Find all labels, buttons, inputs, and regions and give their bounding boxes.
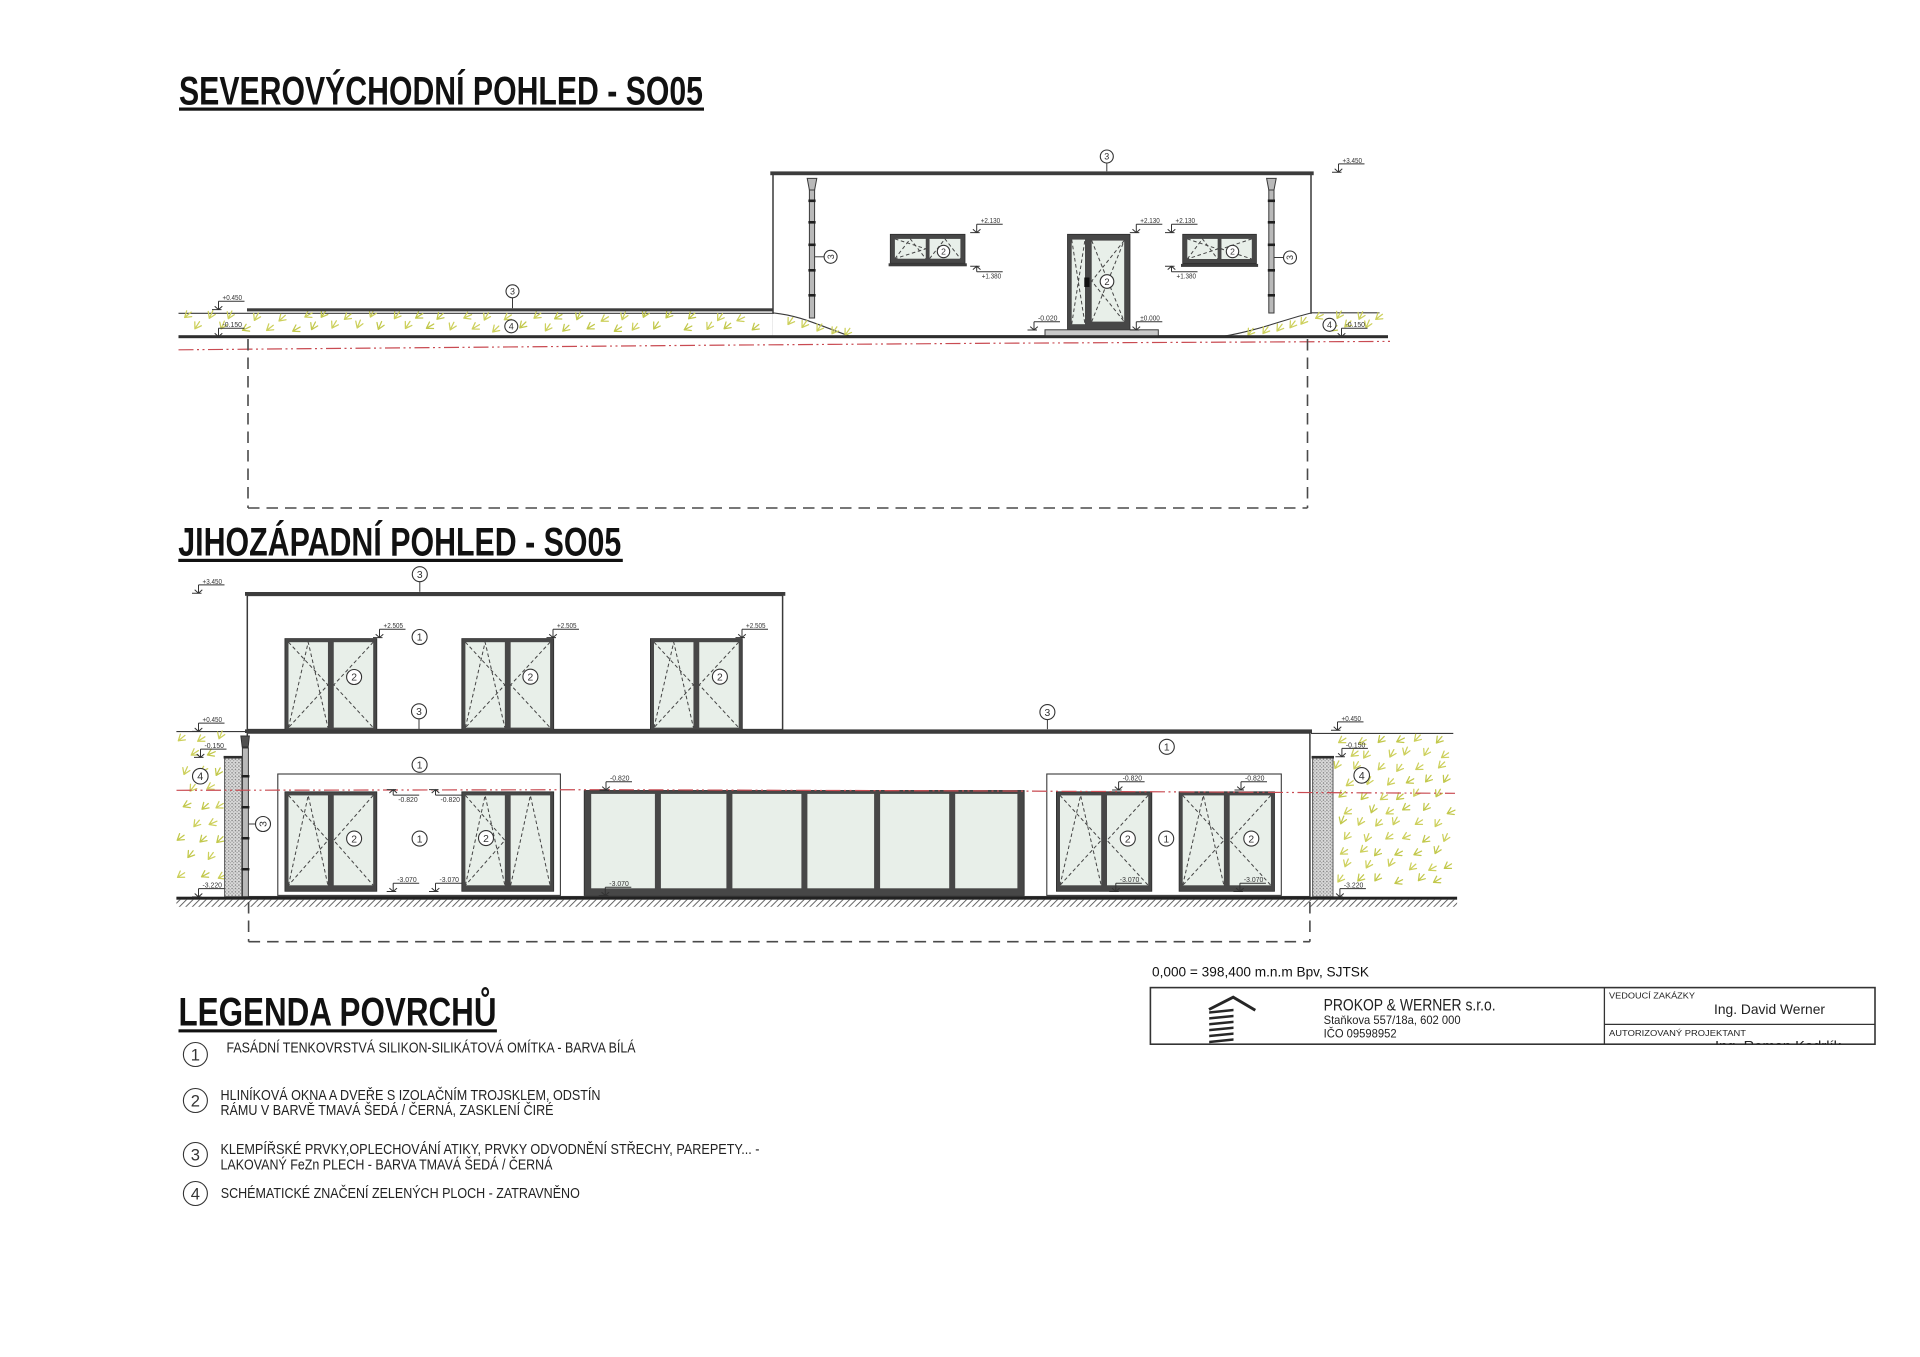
svg-text:4: 4	[197, 771, 203, 783]
svg-text:HLINÍKOVÁ OKNA A DVEŘE S IZOLA: HLINÍKOVÁ OKNA A DVEŘE S IZOLAČNÍM TROJS…	[221, 1087, 601, 1104]
svg-text:+2.505: +2.505	[384, 621, 404, 630]
svg-text:-0.150: -0.150	[1346, 320, 1366, 329]
svg-text:±0.000: ±0.000	[1140, 314, 1160, 323]
svg-text:Ing. David Werner: Ing. David Werner	[1714, 1002, 1825, 1017]
svg-text:-3.070: -3.070	[397, 875, 417, 884]
svg-text:-3.070: -3.070	[1120, 875, 1140, 884]
svg-text:+2.130: +2.130	[981, 216, 1001, 225]
svg-text:SCHÉMATICKÉ ZNAČENÍ ZELENÝCH P: SCHÉMATICKÉ ZNAČENÍ ZELENÝCH PLOCH - ZAT…	[221, 1185, 580, 1202]
svg-text:2: 2	[191, 1091, 200, 1110]
svg-text:1: 1	[417, 834, 423, 845]
svg-text:1: 1	[1164, 743, 1170, 754]
svg-text:1: 1	[191, 1045, 200, 1064]
svg-text:3: 3	[191, 1145, 200, 1164]
svg-text:2: 2	[351, 834, 357, 845]
svg-text:3: 3	[259, 821, 270, 827]
svg-text:0,000 = 398,400 m.n.m Bpv, SJT: 0,000 = 398,400 m.n.m Bpv, SJTSK	[1152, 965, 1369, 980]
svg-text:AUTORIZOVANÝ PROJEKTANT: AUTORIZOVANÝ PROJEKTANT	[1609, 1028, 1747, 1038]
svg-text:FASÁDNÍ TENKOVRSTVÁ SILIKON-SI: FASÁDNÍ TENKOVRSTVÁ SILIKON-SILIKÁTOVÁ O…	[227, 1040, 636, 1057]
svg-text:+1.380: +1.380	[982, 272, 1002, 281]
svg-text:4: 4	[1327, 320, 1332, 330]
svg-text:+0.450: +0.450	[203, 715, 223, 724]
svg-text:-0.150: -0.150	[223, 320, 243, 329]
svg-text:IČO 09598952: IČO 09598952	[1324, 1026, 1397, 1041]
svg-text:3: 3	[416, 707, 422, 718]
svg-text:2: 2	[1230, 247, 1235, 257]
svg-text:2: 2	[1125, 834, 1131, 845]
svg-text:-0.020: -0.020	[1038, 314, 1058, 323]
svg-text:2: 2	[1104, 277, 1109, 287]
svg-text:4: 4	[191, 1184, 200, 1203]
svg-text:2: 2	[351, 673, 357, 684]
svg-text:-0.820: -0.820	[1123, 774, 1143, 783]
svg-text:3: 3	[1285, 255, 1295, 260]
svg-text:2: 2	[717, 672, 723, 683]
svg-text:SEVEROVÝCHODNÍ POHLED - SO05: SEVEROVÝCHODNÍ POHLED - SO05	[179, 68, 703, 114]
svg-text:3: 3	[510, 287, 515, 297]
svg-text:-3.070: -3.070	[440, 875, 460, 884]
svg-text:-3.220: -3.220	[1344, 881, 1364, 890]
svg-text:+2.505: +2.505	[557, 621, 577, 630]
svg-text:2: 2	[528, 672, 534, 683]
svg-text:4: 4	[509, 322, 514, 332]
svg-text:1: 1	[1163, 834, 1169, 845]
svg-text:-3.220: -3.220	[203, 881, 223, 890]
svg-text:2: 2	[483, 834, 489, 845]
svg-text:2: 2	[1248, 834, 1254, 845]
svg-text:LAKOVANÝ FeZn PLECH - BARVA TM: LAKOVANÝ FeZn PLECH - BARVA TMAVÁ ŠEDÁ /…	[221, 1156, 553, 1173]
svg-text:+3.450: +3.450	[1343, 156, 1363, 165]
svg-text:+2.130: +2.130	[1176, 216, 1196, 225]
svg-text:RÁMU V BARVĚ TMAVÁ ŠEDÁ / ČERN: RÁMU V BARVĚ TMAVÁ ŠEDÁ / ČERNÁ, ZASKLEN…	[221, 1102, 554, 1119]
svg-text:-0.820: -0.820	[398, 795, 418, 804]
svg-text:3: 3	[1104, 152, 1109, 162]
svg-text:2: 2	[941, 247, 946, 257]
svg-text:+1.380: +1.380	[1177, 272, 1197, 281]
svg-text:1: 1	[417, 633, 423, 644]
svg-text:3: 3	[1045, 708, 1051, 719]
svg-text:-0.820: -0.820	[441, 795, 461, 804]
svg-text:-0.150: -0.150	[1346, 740, 1366, 749]
svg-text:+3.450: +3.450	[203, 577, 223, 586]
svg-text:+2.505: +2.505	[746, 621, 766, 630]
svg-text:Staňkova 557/18a, 602 000: Staňkova 557/18a, 602 000	[1324, 1013, 1461, 1027]
svg-text:3: 3	[826, 254, 836, 259]
svg-text:4: 4	[1359, 770, 1365, 782]
svg-text:-3.070: -3.070	[1244, 875, 1264, 884]
svg-text:-0.820: -0.820	[1245, 774, 1265, 783]
svg-text:1: 1	[417, 761, 423, 772]
svg-text:+0.450: +0.450	[223, 293, 243, 302]
svg-text:-0.820: -0.820	[610, 774, 630, 783]
svg-text:KLEMPÍŘSKÉ PRVKY,OPLECHOVÁNÍ A: KLEMPÍŘSKÉ PRVKY,OPLECHOVÁNÍ ATIKY, PRVK…	[221, 1141, 760, 1158]
svg-text:PROKOP & WERNER s.r.o.: PROKOP & WERNER s.r.o.	[1324, 997, 1496, 1015]
svg-text:JIHOZÁPADNÍ POHLED - SO05: JIHOZÁPADNÍ POHLED - SO05	[178, 520, 621, 565]
svg-text:-3.070: -3.070	[609, 879, 629, 888]
svg-text:VEDOUCÍ ZAKÁZKY: VEDOUCÍ ZAKÁZKY	[1609, 991, 1695, 1001]
svg-text:-0.150: -0.150	[205, 741, 225, 750]
svg-text:+2.130: +2.130	[1140, 216, 1160, 225]
svg-text:LEGENDA POVRCHŮ: LEGENDA POVRCHŮ	[179, 986, 497, 1035]
svg-text:3: 3	[417, 570, 423, 581]
svg-text:+0.450: +0.450	[1342, 714, 1362, 723]
